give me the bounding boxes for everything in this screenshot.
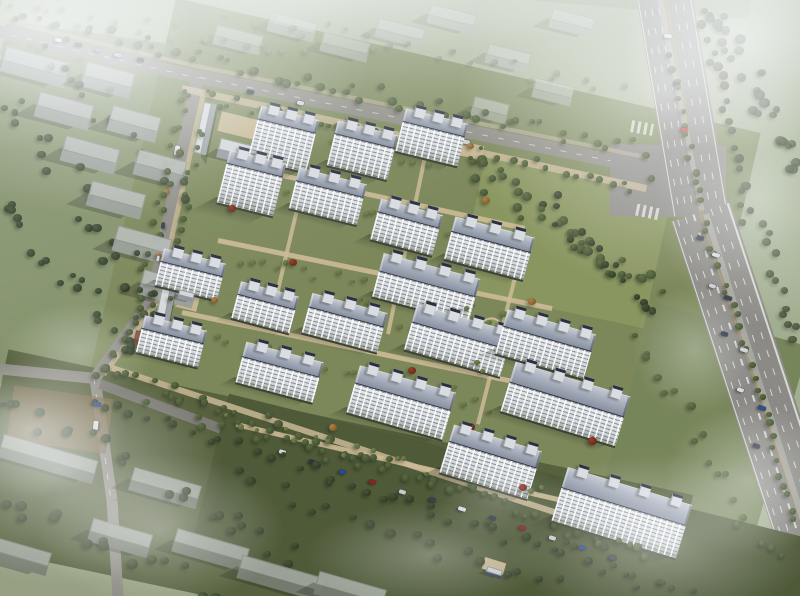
tree <box>101 434 110 443</box>
tree <box>155 52 161 58</box>
tree <box>12 109 19 115</box>
tree <box>337 270 342 275</box>
tree <box>90 429 97 436</box>
tree <box>183 108 188 113</box>
tree <box>255 448 262 455</box>
tree <box>112 353 117 358</box>
tree <box>702 228 708 234</box>
tree <box>385 462 392 469</box>
tree <box>470 484 477 490</box>
tree <box>646 270 655 279</box>
tree <box>784 321 792 328</box>
tree <box>522 192 532 201</box>
tree <box>245 43 251 48</box>
tree <box>643 354 650 361</box>
tree <box>253 436 261 443</box>
residential-building <box>136 315 207 365</box>
tree <box>98 257 107 266</box>
tree <box>290 502 296 508</box>
residential-building <box>327 121 398 179</box>
tree <box>518 215 525 221</box>
tree <box>769 112 776 119</box>
tree <box>457 485 464 491</box>
tree <box>589 240 595 246</box>
tree <box>720 81 730 90</box>
tree <box>736 165 743 172</box>
tree <box>75 216 82 222</box>
tree <box>174 238 180 244</box>
tree <box>772 249 780 256</box>
tree <box>395 456 401 461</box>
tree <box>578 228 586 235</box>
tree <box>584 77 590 82</box>
tree <box>102 365 110 372</box>
tree <box>3 39 9 45</box>
tree <box>700 431 707 438</box>
tree <box>137 30 142 35</box>
tree <box>737 202 743 208</box>
tree <box>386 529 396 538</box>
tree <box>250 260 256 265</box>
tree <box>148 291 154 297</box>
tree <box>512 178 520 185</box>
tree <box>191 430 197 435</box>
tree <box>371 448 376 453</box>
tree <box>327 21 332 25</box>
tree <box>584 557 592 565</box>
tree <box>719 106 726 112</box>
tree <box>114 401 122 408</box>
tree <box>537 119 542 124</box>
tree <box>620 278 626 284</box>
tree <box>601 544 609 551</box>
tree <box>528 488 534 494</box>
tree <box>567 229 574 235</box>
tree <box>735 154 745 163</box>
tree <box>91 118 96 123</box>
tree <box>290 25 296 31</box>
tree <box>514 510 520 516</box>
tree <box>181 195 190 203</box>
tree <box>768 544 776 551</box>
tree <box>470 159 477 165</box>
tree <box>406 41 411 46</box>
tree <box>298 33 305 39</box>
tree <box>693 179 699 185</box>
tree <box>298 466 304 472</box>
tree <box>529 78 534 82</box>
tree <box>180 178 188 185</box>
tree <box>554 191 562 198</box>
tree <box>122 370 129 376</box>
tree <box>150 219 158 226</box>
tree <box>168 296 173 301</box>
tree <box>480 369 484 373</box>
tree <box>464 306 469 311</box>
tree <box>216 409 222 414</box>
tree <box>362 277 367 282</box>
tree <box>149 44 154 49</box>
tree <box>543 165 549 170</box>
tree <box>622 83 628 89</box>
tree <box>510 157 518 164</box>
tree <box>596 245 603 252</box>
residential-building <box>396 108 468 164</box>
tree <box>504 571 512 578</box>
tree <box>691 588 697 594</box>
tree <box>492 59 498 65</box>
tree <box>134 250 140 256</box>
tree <box>131 132 137 138</box>
residential-building <box>232 281 299 331</box>
tree <box>779 553 785 559</box>
tree <box>471 174 480 183</box>
tree <box>62 428 72 437</box>
tree <box>312 438 320 445</box>
tree <box>250 111 254 115</box>
tree <box>152 378 157 383</box>
tree <box>661 390 668 396</box>
tree <box>227 527 236 535</box>
tree <box>596 176 603 182</box>
tree <box>427 163 432 167</box>
tree <box>179 493 189 502</box>
tree <box>101 404 110 412</box>
tree <box>401 456 406 461</box>
tree <box>727 55 735 62</box>
tree <box>747 207 755 214</box>
tree <box>536 576 542 582</box>
tree <box>219 421 226 428</box>
tree <box>535 541 541 547</box>
tree <box>196 49 202 54</box>
tree <box>78 56 84 61</box>
tree <box>784 491 791 497</box>
tree <box>236 437 243 444</box>
tree <box>124 410 133 418</box>
tree <box>49 23 55 28</box>
tree <box>648 175 655 181</box>
tree <box>627 189 632 193</box>
tree <box>735 311 741 317</box>
tree <box>171 126 178 133</box>
tree <box>591 86 596 91</box>
tree <box>473 397 478 402</box>
tree <box>388 97 397 105</box>
tree <box>265 412 273 419</box>
residential-building <box>217 150 286 214</box>
tree <box>712 50 718 56</box>
tree <box>737 73 746 81</box>
tree <box>145 251 151 257</box>
tree <box>194 163 199 168</box>
tree <box>95 288 102 294</box>
tree <box>770 433 777 439</box>
tree <box>668 66 675 73</box>
tree <box>34 5 41 11</box>
tree <box>92 372 99 379</box>
tree <box>79 92 85 97</box>
tree <box>176 398 184 405</box>
tree <box>638 274 647 282</box>
tree <box>775 473 783 480</box>
tree <box>111 252 119 260</box>
tree <box>268 454 277 462</box>
tree <box>560 130 567 136</box>
tree <box>489 523 498 531</box>
tree <box>303 48 310 54</box>
tree <box>522 160 529 166</box>
tree <box>402 474 410 481</box>
tree <box>713 62 723 71</box>
tree <box>532 511 540 518</box>
tree <box>587 173 593 179</box>
tree <box>283 260 288 265</box>
tree <box>588 437 597 445</box>
tree <box>42 167 51 175</box>
tree <box>476 557 485 565</box>
tree <box>379 466 386 473</box>
tree <box>37 135 43 141</box>
tree <box>428 512 435 518</box>
tree <box>681 109 686 114</box>
tree <box>19 13 26 20</box>
tree <box>344 27 348 31</box>
tree <box>208 439 215 445</box>
tree <box>414 531 422 538</box>
tree <box>169 420 177 427</box>
tree <box>284 427 288 431</box>
tree <box>165 490 175 499</box>
tree <box>98 541 109 551</box>
tree <box>611 563 616 568</box>
tree <box>602 145 609 151</box>
tree <box>613 262 619 268</box>
tree <box>246 477 255 486</box>
tree <box>164 168 171 174</box>
tree <box>513 568 521 575</box>
tree <box>274 420 283 428</box>
tree <box>513 203 522 211</box>
tree <box>319 122 324 127</box>
tree <box>649 307 657 314</box>
tree <box>371 210 376 215</box>
tree <box>371 46 377 52</box>
tree <box>176 149 184 156</box>
tree <box>324 367 328 371</box>
tree <box>82 539 93 549</box>
tree <box>468 61 473 65</box>
tree <box>201 399 209 406</box>
tree <box>740 514 747 521</box>
tree <box>133 320 140 326</box>
tree <box>365 211 370 216</box>
tree <box>363 489 371 496</box>
tree <box>145 35 151 40</box>
tree <box>704 37 711 43</box>
tree <box>222 37 227 42</box>
tree <box>689 144 695 150</box>
tree <box>346 371 350 375</box>
residential-building <box>371 199 443 254</box>
tree <box>341 453 346 458</box>
tree <box>92 224 101 232</box>
tree <box>501 540 507 545</box>
tree <box>1 105 8 111</box>
tree <box>706 460 712 466</box>
tree <box>150 302 157 308</box>
tree <box>211 297 218 303</box>
tree <box>16 221 24 228</box>
tree <box>378 83 385 90</box>
tree <box>714 262 721 269</box>
tree <box>553 203 560 209</box>
tree <box>411 160 416 165</box>
tree <box>471 520 479 527</box>
tree <box>731 145 738 151</box>
tree <box>398 324 403 329</box>
tree <box>582 132 588 138</box>
tree <box>633 543 641 551</box>
tree <box>434 554 442 561</box>
tree <box>232 410 237 415</box>
tree <box>161 192 167 197</box>
tree <box>675 96 680 101</box>
tree <box>386 43 393 49</box>
tree <box>571 543 578 550</box>
tree <box>704 220 710 225</box>
tree <box>17 514 26 523</box>
tree <box>563 171 570 177</box>
aerial-residential-render <box>0 0 800 596</box>
tree <box>295 81 300 86</box>
tree <box>616 538 621 543</box>
tree <box>753 376 758 381</box>
residential-building <box>289 168 367 224</box>
tree <box>480 189 488 196</box>
tree <box>182 562 189 569</box>
tree <box>561 139 566 144</box>
tree <box>114 371 121 377</box>
tree <box>684 155 690 161</box>
tree <box>264 551 271 557</box>
tree <box>734 521 741 528</box>
tree <box>203 37 209 43</box>
tree <box>389 493 398 501</box>
tree <box>780 483 787 490</box>
tree <box>216 334 221 339</box>
tree <box>462 402 467 407</box>
tree <box>224 104 229 108</box>
tree <box>218 55 224 60</box>
tree <box>450 49 455 54</box>
tree <box>343 89 350 96</box>
tree <box>759 540 766 546</box>
tree <box>769 445 775 451</box>
tree <box>209 91 216 97</box>
tree <box>736 36 744 44</box>
tree <box>400 159 405 163</box>
tree <box>722 471 728 477</box>
tree <box>199 132 205 137</box>
tree <box>554 70 561 76</box>
tree <box>198 423 205 430</box>
tree <box>731 302 737 308</box>
tree <box>19 98 25 104</box>
tree <box>445 519 452 525</box>
tree <box>724 98 730 104</box>
tree <box>772 277 779 284</box>
tree <box>168 143 173 148</box>
tree <box>161 207 167 212</box>
tree <box>467 143 474 149</box>
tree <box>719 71 728 79</box>
tree <box>760 394 767 400</box>
tree <box>659 580 666 586</box>
tree <box>250 67 258 74</box>
tree <box>224 340 229 345</box>
tree <box>697 20 706 28</box>
tree <box>312 461 321 469</box>
tree <box>558 575 565 581</box>
tree <box>306 444 314 451</box>
tree <box>500 124 506 129</box>
tree <box>725 118 733 126</box>
tree <box>660 289 666 295</box>
tree <box>479 159 488 167</box>
tree <box>257 527 264 534</box>
tree <box>754 110 762 117</box>
tree <box>210 514 216 520</box>
tree <box>779 311 787 318</box>
tree <box>499 173 507 180</box>
tree <box>557 549 565 556</box>
tree <box>285 190 289 194</box>
tree <box>49 513 60 523</box>
tree <box>237 70 244 77</box>
tree <box>327 480 333 485</box>
tree <box>354 443 360 448</box>
tree <box>406 495 414 503</box>
tree <box>224 12 229 17</box>
tree <box>426 539 435 547</box>
tree <box>693 169 701 176</box>
tree <box>762 238 771 246</box>
tree <box>602 261 609 267</box>
tree <box>749 362 755 368</box>
tree <box>781 287 788 293</box>
tree <box>284 435 290 440</box>
tree <box>619 257 626 263</box>
tree <box>654 374 661 381</box>
tree <box>626 273 632 279</box>
tree <box>523 533 532 541</box>
tree <box>534 156 541 162</box>
tree <box>687 402 696 410</box>
tree <box>111 327 118 334</box>
tree <box>127 559 138 569</box>
tree <box>282 79 291 87</box>
tree <box>12 16 19 22</box>
tree <box>107 26 116 34</box>
tree <box>350 83 355 88</box>
tree <box>735 323 742 330</box>
tree <box>759 220 768 228</box>
tree <box>766 419 773 426</box>
tree <box>629 572 636 578</box>
tree <box>8 3 13 8</box>
tree <box>481 491 487 497</box>
